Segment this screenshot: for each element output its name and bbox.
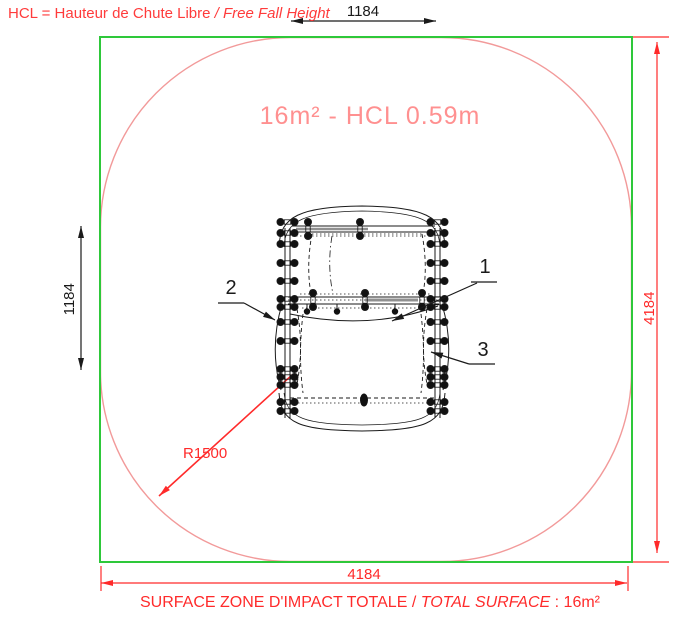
technical-drawing-page: HCL = Hauteur de Chute Libre / Free Fall… [0, 0, 681, 621]
caption-main: SURFACE ZONE D'IMPACT TOTALE / [140, 594, 421, 611]
free-fall-height-note: HCL = Hauteur de Chute Libre / Free Fall… [8, 6, 330, 23]
dimension-top-value: 1184 [333, 4, 393, 21]
sub-clamps [304, 308, 398, 314]
left-rail-clamps [277, 219, 298, 415]
part-label-2: 2 [218, 277, 244, 299]
drawing-canvas [0, 0, 681, 621]
corner-radius-label: R1500 [183, 446, 227, 463]
zone-area-hcl-label: 16m² - HCL 0.59m [250, 103, 490, 131]
equipment-drawing [275, 206, 449, 431]
caption-italic: TOTAL SURFACE [421, 594, 551, 611]
note-main: HCL = Hauteur de Chute Libre [8, 5, 215, 22]
dimension-left-value: 1184 [62, 269, 79, 329]
caption-suffix: : 16m² [550, 594, 600, 611]
part-label-1: 1 [472, 256, 498, 278]
total-surface-caption: SURFACE ZONE D'IMPACT TOTALE / TOTAL SUR… [110, 594, 630, 612]
radius-leader [159, 375, 292, 496]
note-italic: / Free Fall Height [215, 5, 330, 22]
dimension-right-value: 4184 [642, 278, 659, 338]
part-label-3: 3 [470, 339, 496, 361]
dimension-bottom-value: 4184 [334, 567, 394, 584]
